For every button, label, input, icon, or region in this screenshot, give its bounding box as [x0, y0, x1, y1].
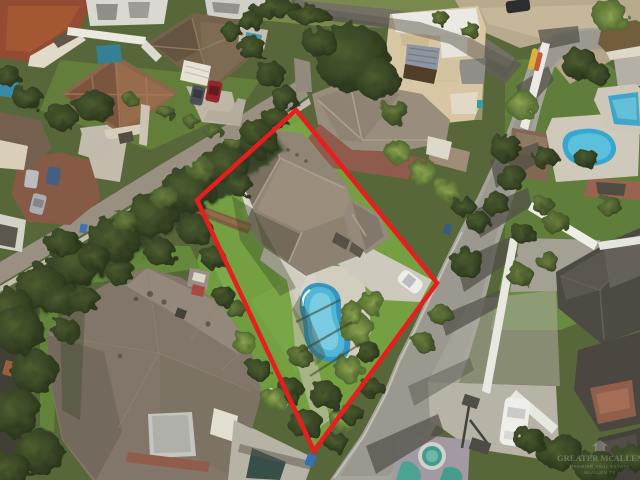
svg-text:McALLEN TX: McALLEN TX — [584, 470, 615, 475]
svg-text:PREMIER REAL ESTATE: PREMIER REAL ESTATE — [570, 464, 629, 469]
svg-text:GREATER MCALLEN: GREATER MCALLEN — [557, 453, 640, 463]
